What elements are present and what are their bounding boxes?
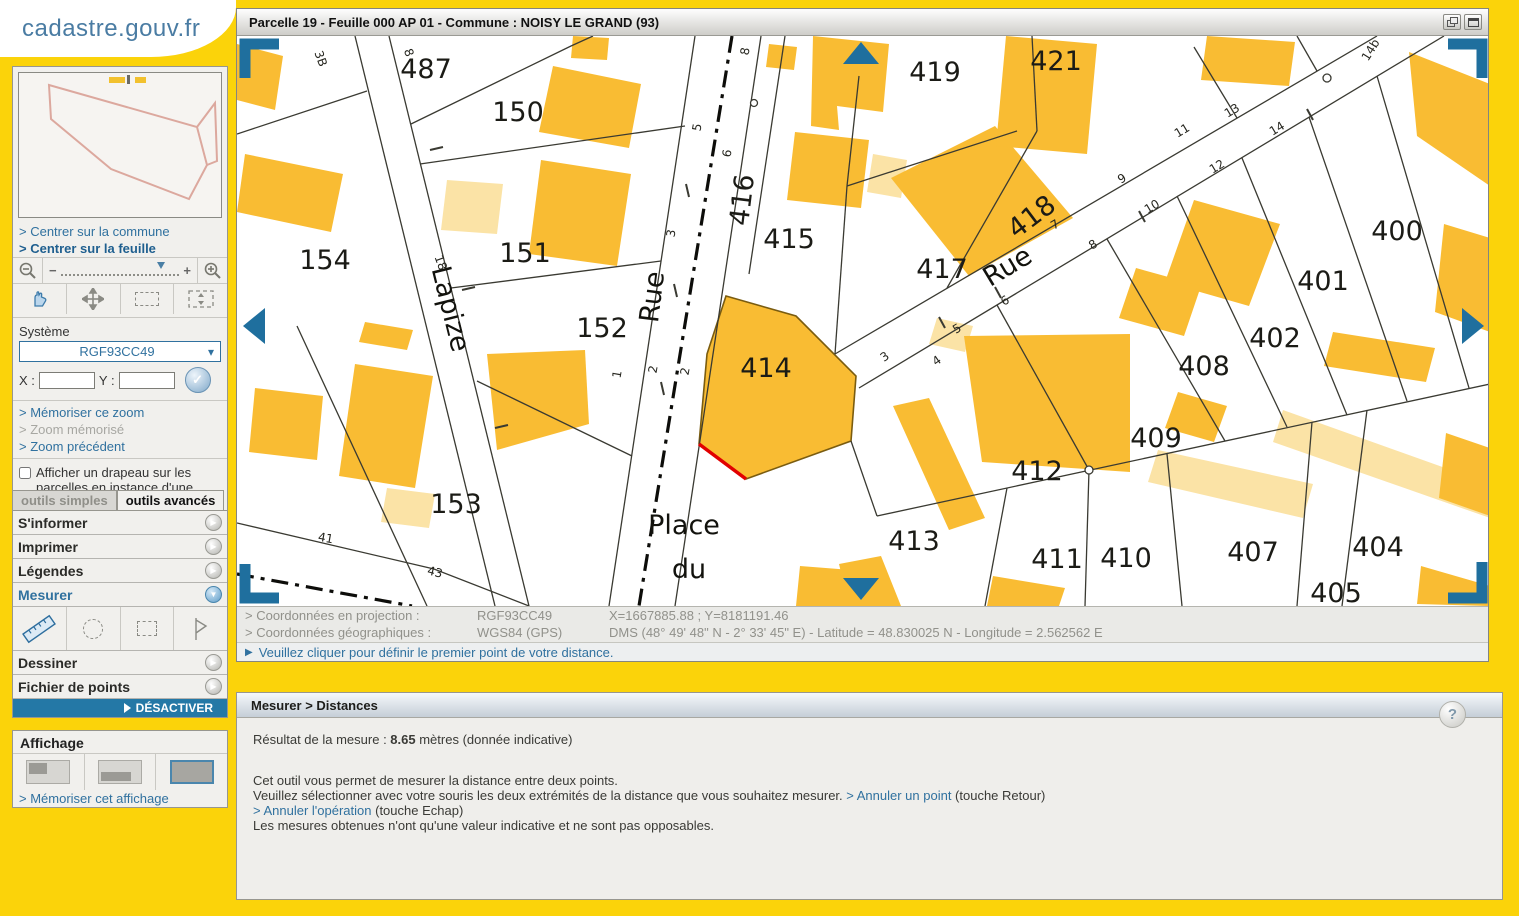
lot-number-label: 8	[738, 46, 753, 56]
parcel-number-label: 402	[1249, 323, 1301, 354]
parcel-number-label: 153	[430, 489, 482, 520]
lot-number-label: 43	[426, 563, 444, 580]
pan-rect-tool[interactable]	[174, 284, 227, 314]
maximize-window-button[interactable]	[1464, 14, 1482, 30]
tab-outils-avances[interactable]: outils avancés	[117, 490, 225, 511]
parcel-number-label: 151	[499, 238, 551, 269]
measure-area-tool[interactable]	[121, 607, 175, 650]
parcel-number-label: 411	[1031, 544, 1083, 575]
parcel-number-label: 414	[740, 353, 792, 384]
accordion-label: Mesurer	[18, 587, 205, 603]
center-feuille-link[interactable]: > Centrer sur la feuille	[13, 240, 227, 257]
layout-small-icon	[26, 760, 70, 784]
measure-instruction-bar: ▶ Veuillez cliquer pour définir le premi…	[237, 642, 1488, 661]
dashed-rectangle-icon	[135, 292, 159, 306]
expand-icon: ▶	[205, 678, 222, 695]
tools-accordion: S'informer ▶ Imprimer ▶ Légendes ▶ Mesur…	[12, 510, 228, 718]
parcel-number-label: 412	[1011, 456, 1063, 487]
projection-selected-value: RGF93CC49	[26, 344, 208, 359]
parcel-number-label: 409	[1130, 423, 1182, 454]
dashed-square-icon	[137, 621, 157, 636]
accordion-item-fichier-points[interactable]: Fichier de points ▶	[13, 675, 227, 699]
lot-number-label: 10	[1142, 197, 1162, 217]
slider-thumb[interactable]	[157, 262, 165, 269]
street-name-label: Rue	[634, 270, 671, 325]
restore-window-button[interactable]	[1443, 14, 1461, 30]
arrow-right-icon	[124, 703, 131, 713]
parcel-number-label: 404	[1352, 532, 1404, 563]
measure-panel-title: Mesurer > Distances	[251, 698, 378, 713]
lot-number-label: 4	[930, 353, 944, 369]
ruler-icon	[22, 613, 56, 645]
geo-system-value: WGS84 (GPS)	[477, 625, 609, 641]
x-coordinate-input[interactable]	[39, 372, 95, 389]
zoom-in-button[interactable]	[197, 258, 227, 283]
layout-wide-icon	[98, 760, 142, 784]
instruction-text: Veuillez cliquer pour définir le premier…	[259, 645, 614, 660]
parcel-number-label: 417	[916, 254, 968, 285]
survey-node	[1323, 74, 1331, 82]
lot-number-label: 6	[998, 293, 1012, 309]
measure-help-line1: Cet outil vous permet de mesurer la dist…	[253, 773, 1486, 788]
projection-select[interactable]: RGF93CC49 ▾	[19, 341, 221, 362]
slider-plus[interactable]: +	[183, 263, 191, 278]
lot-number-label: 9	[1115, 171, 1129, 187]
measure-help-line2: Veuillez sélectionner avec votre souris …	[253, 788, 1486, 803]
parcel-number-label: 419	[909, 57, 961, 88]
accordion-label: Dessiner	[18, 655, 205, 671]
survey-node	[1085, 466, 1093, 474]
parcel-number-label: 405	[1310, 578, 1362, 606]
proj-coords-label: > Coordonnées en projection :	[245, 608, 477, 624]
geo-dms-value: DMS (48° 49' 48" N - 2° 33' 45" E) - Lat…	[609, 625, 1480, 641]
tab-outils-simples[interactable]: outils simples	[12, 490, 117, 511]
parcel-414-highlight[interactable]	[699, 296, 856, 479]
flag-triangle-icon	[193, 617, 209, 641]
parcel-number-label: 416	[724, 172, 761, 227]
lot-number-label: 2	[678, 366, 693, 376]
map-window: Parcelle 19 - Feuille 000 AP 01 - Commun…	[236, 8, 1489, 662]
parcel-number-label: 421	[1030, 46, 1082, 77]
parcel-number-label: 401	[1297, 266, 1349, 297]
measure-tools	[13, 607, 227, 651]
center-commune-link[interactable]: > Centrer sur la commune	[13, 223, 227, 240]
minimap-graphic	[19, 73, 221, 217]
zoom-out-button[interactable]	[13, 258, 43, 283]
lot-number-label: 3	[664, 228, 679, 238]
measure-panel-header: Mesurer > Distances	[237, 693, 1502, 718]
zoom-bar: − +	[13, 257, 227, 284]
layout-option-small[interactable]	[13, 754, 85, 790]
tools-tabs: outils simples outils avancés	[12, 490, 228, 511]
collapse-icon: ▼	[205, 586, 222, 603]
proj-xy-value: X=1667885.88 ; Y=8181191.46	[609, 608, 1480, 624]
coordinates-bar: > Coordonnées en projection : RGF93CC49 …	[237, 606, 1488, 642]
memorized-zoom-link: > Zoom mémorisé	[13, 421, 227, 438]
measure-panel-body: Résultat de la mesure : 8.65 mètres (don…	[237, 718, 1502, 847]
cancel-point-link[interactable]: > Annuler un point	[846, 788, 951, 803]
slider-minus[interactable]: −	[49, 263, 57, 278]
zoom-rect-tool[interactable]	[121, 284, 175, 314]
parcel-number-label: 415	[763, 224, 815, 255]
arrow-right-icon: ▶	[245, 647, 253, 658]
accordion-label: Fichier de points	[18, 679, 205, 695]
expand-icon: ▶	[205, 514, 222, 531]
help-button[interactable]: ?	[1439, 701, 1466, 728]
lot-number-label: 14b	[1359, 36, 1383, 63]
measure-result-value: 8.65	[390, 732, 415, 747]
dashed-circle-icon	[83, 619, 103, 639]
sidebar-panel: > Centrer sur la commune > Centrer sur l…	[12, 66, 228, 517]
crosshair-move-icon	[82, 288, 104, 310]
pan-left-arrow[interactable]	[243, 308, 265, 344]
proj-system-value: RGF93CC49	[477, 608, 609, 624]
accordion-item-dessiner[interactable]: Dessiner ▶	[13, 651, 227, 675]
slider-track[interactable]	[61, 266, 180, 276]
layout-option-full[interactable]	[156, 754, 227, 790]
accordion-label: Imprimer	[18, 539, 205, 555]
parcel-number-label: 150	[492, 97, 544, 128]
zoom-slider[interactable]: − +	[43, 263, 197, 278]
display-panel: Affichage > Mémoriser cet affichage	[12, 730, 228, 808]
lot-number-label: 14	[1267, 119, 1287, 139]
parcel-number-label: 410	[1100, 543, 1152, 574]
lot-number-label: 6	[720, 148, 735, 158]
lot-number-label: 2	[646, 364, 661, 374]
measure-help-line3: > Annuler l'opération (touche Echap)	[253, 803, 1486, 818]
magnifier-minus-icon	[19, 262, 37, 280]
measure-distance-tool[interactable]	[13, 607, 67, 650]
expand-icon: ▶	[205, 538, 222, 555]
y-coordinate-input[interactable]	[119, 372, 175, 389]
accordion-item-mesurer[interactable]: Mesurer ▼	[13, 583, 227, 607]
hand-pan-tool[interactable]	[13, 284, 67, 314]
street-name-label: du	[672, 554, 706, 585]
lot-number-label: 5	[690, 122, 705, 132]
lot-number-label: 3B	[311, 49, 330, 69]
deactivate-label: DÉSACTIVER	[136, 701, 213, 715]
accordion-item-sinformer[interactable]: S'informer ▶	[13, 511, 227, 535]
accordion-label: S'informer	[18, 515, 205, 531]
accordion-item-legendes[interactable]: Légendes ▶	[13, 559, 227, 583]
parcel-number-label: 400	[1371, 216, 1423, 247]
chevron-down-icon: ▾	[208, 345, 214, 359]
parcel-number-label: 154	[299, 245, 351, 276]
lot-number-label: 41	[317, 530, 334, 546]
measure-angle-tool[interactable]	[174, 607, 227, 650]
go-to-xy-button[interactable]: ✓	[185, 367, 211, 393]
parcel-number-label: 413	[888, 526, 940, 557]
expand-icon: ▶	[205, 654, 222, 671]
y-label: Y :	[99, 373, 115, 388]
parcel-number-label: 408	[1178, 351, 1230, 382]
accordion-item-imprimer[interactable]: Imprimer ▶	[13, 535, 227, 559]
lot-number-label: 3	[878, 349, 892, 365]
parcel-number-label: 152	[576, 313, 628, 344]
survey-node	[751, 100, 758, 107]
site-logo: cadastre.gouv.fr	[0, 0, 236, 57]
map-title: Parcelle 19 - Feuille 000 AP 01 - Commun…	[249, 15, 1440, 30]
lot-number-label: 12	[1207, 157, 1227, 177]
measure-circle-tool[interactable]	[67, 607, 121, 650]
overview-minimap[interactable]	[18, 72, 222, 218]
center-map-tool[interactable]	[67, 284, 121, 314]
layout-full-icon	[170, 760, 214, 784]
display-title: Affichage	[13, 731, 227, 754]
flag-checkbox[interactable]	[19, 467, 31, 479]
accordion-label: Légendes	[18, 563, 205, 579]
hand-icon	[29, 289, 49, 309]
magnifier-plus-icon	[204, 262, 222, 280]
layout-option-wide[interactable]	[85, 754, 157, 790]
parcel-number-label: 407	[1227, 537, 1279, 568]
measure-help-line4: Les mesures obtenues n'ont qu'une valeur…	[253, 818, 1486, 833]
map-canvas[interactable]: 4871501511521531544144154164174184194214…	[237, 36, 1488, 606]
street-name-label: Place	[648, 510, 720, 541]
deactivate-button[interactable]: DÉSACTIVER	[13, 699, 227, 717]
street-name-label: Lapize	[425, 263, 476, 355]
x-label: X :	[19, 373, 35, 388]
site-logo-text: cadastre.gouv.fr	[22, 15, 200, 43]
lot-number-label: 11	[1172, 121, 1192, 141]
map-titlebar: Parcelle 19 - Feuille 000 AP 01 - Commun…	[237, 9, 1488, 36]
system-label: Système	[13, 321, 227, 340]
previous-zoom-link[interactable]: > Zoom précédent	[13, 438, 227, 455]
pan-tools	[13, 284, 227, 314]
lot-number-label: 1	[610, 369, 625, 379]
cancel-operation-link[interactable]: > Annuler l'opération	[253, 803, 372, 818]
measure-panel: Mesurer > Distances ? Résultat de la mes…	[236, 692, 1503, 900]
expand-icon: ▶	[205, 562, 222, 579]
dashed-rectangle-arrows-icon	[188, 290, 214, 308]
memorize-zoom-link[interactable]: > Mémoriser ce zoom	[13, 404, 227, 421]
measure-result: Résultat de la mesure : 8.65 mètres (don…	[253, 732, 1486, 747]
geo-coords-label: > Coordonnées géographiques :	[245, 625, 477, 641]
parcel-number-label: 487	[400, 54, 452, 85]
memorize-display-link[interactable]: > Mémoriser cet affichage	[13, 790, 227, 807]
